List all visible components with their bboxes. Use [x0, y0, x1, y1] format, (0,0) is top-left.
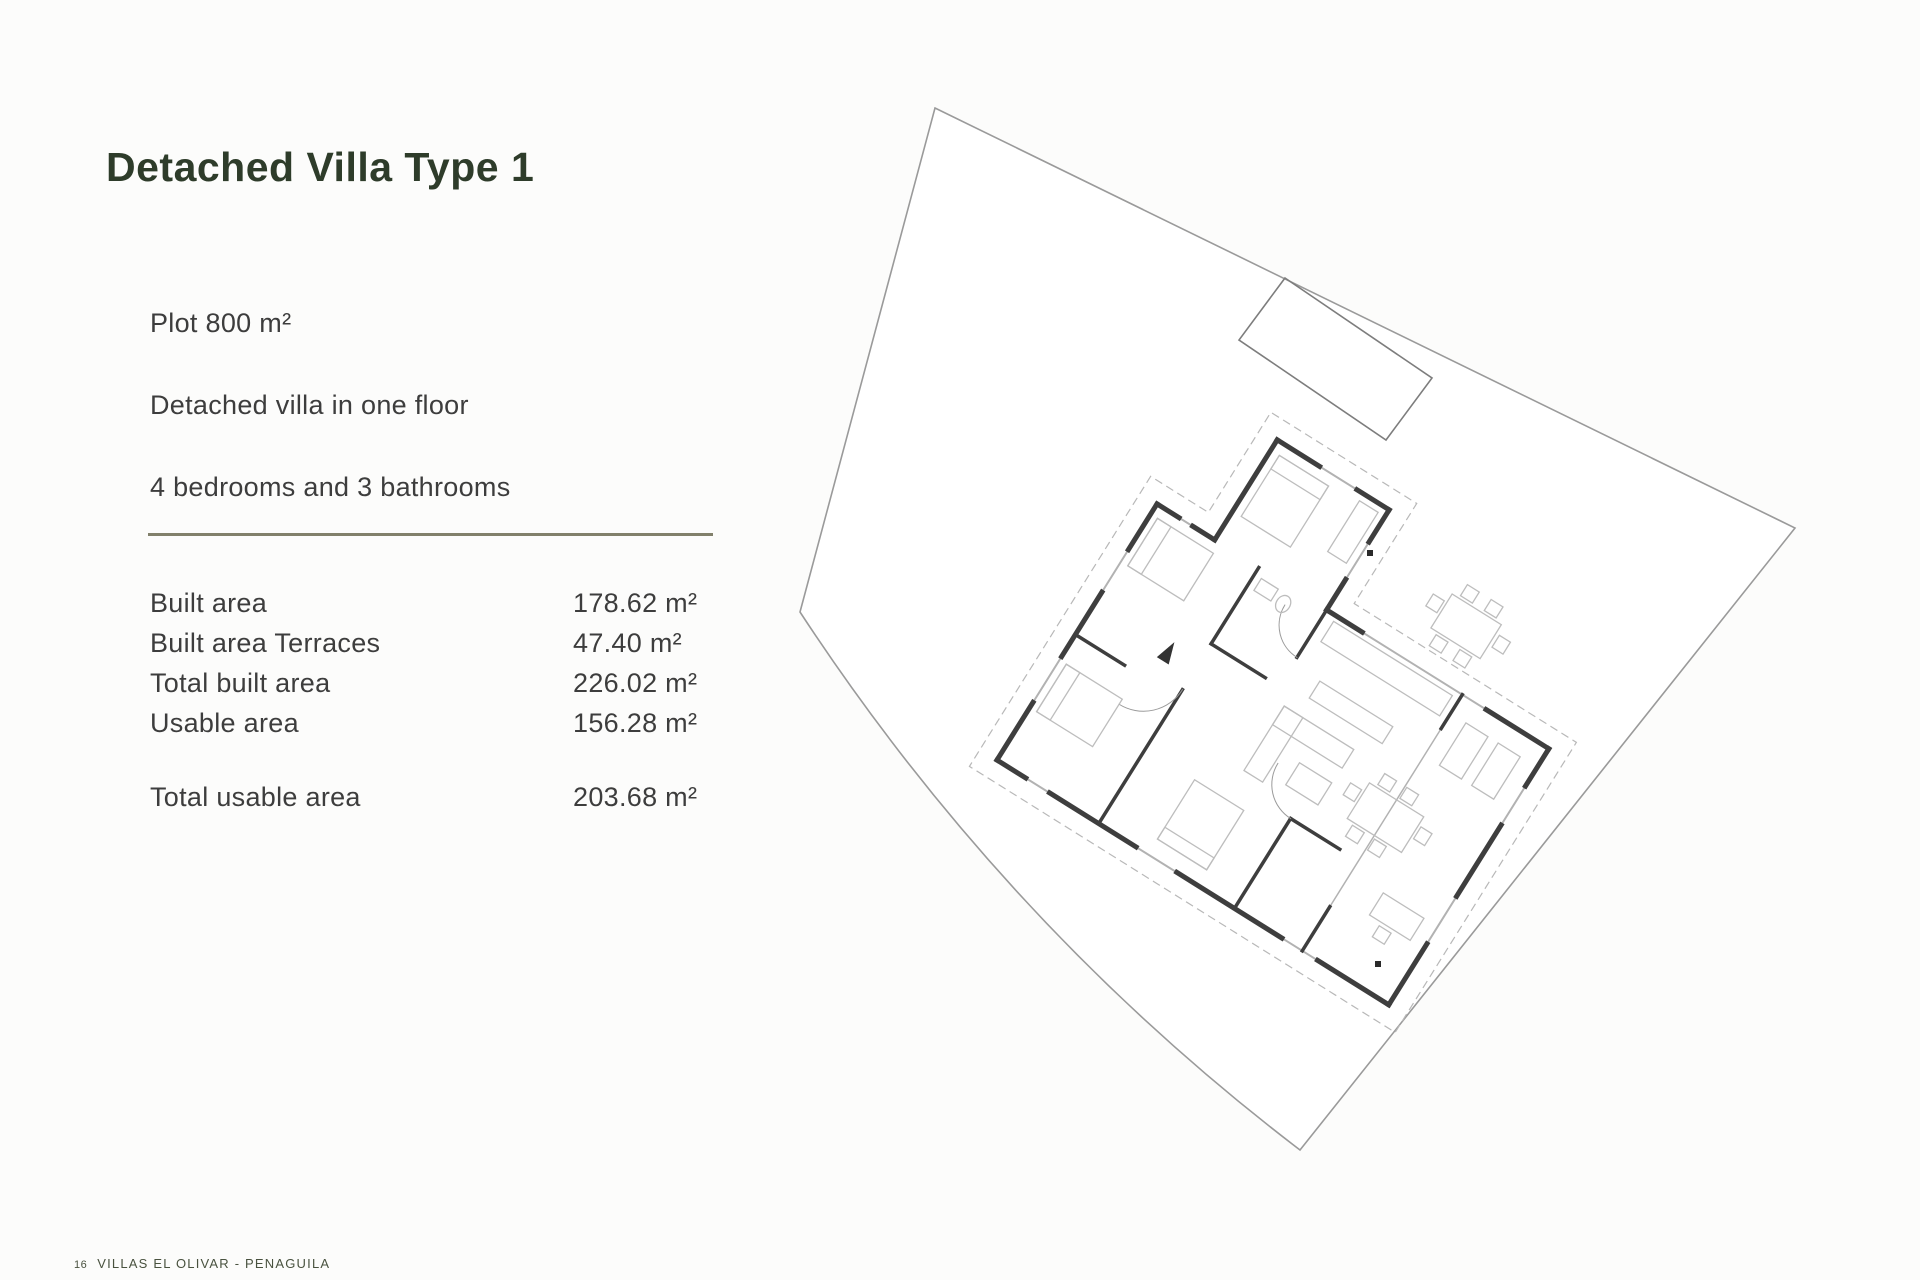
table-row: Usable area 156.28 m²: [150, 708, 710, 748]
area-label: Total usable area: [150, 782, 361, 813]
spec-floors: Detached villa in one floor: [150, 390, 469, 421]
table-row: Total built area 226.02 m²: [150, 668, 710, 708]
area-label: Total built area: [150, 668, 330, 699]
survey-marker-dot: [1367, 550, 1373, 556]
spec-rooms: 4 bedrooms and 3 bathrooms: [150, 472, 511, 503]
area-total-row: Total usable area 203.68 m²: [150, 782, 710, 822]
brochure-page: Detached Villa Type 1 Plot 800 m² Detach…: [0, 0, 1920, 1280]
page-footer: 16VILLAS EL OLIVAR - PENAGUILA: [74, 1256, 330, 1271]
section-divider: [148, 533, 713, 536]
plot-boundary: [800, 108, 1795, 1150]
table-row: Built area Terraces 47.40 m²: [150, 628, 710, 668]
footer-project-name: VILLAS EL OLIVAR - PENAGUILA: [97, 1256, 330, 1271]
area-label: Built area Terraces: [150, 628, 380, 659]
area-label: Usable area: [150, 708, 299, 739]
area-value: 178.62 m²: [573, 588, 697, 619]
table-row: Built area 178.62 m²: [150, 588, 710, 628]
survey-marker-dot: [1375, 961, 1381, 967]
spec-plot-size: Plot 800 m²: [150, 308, 291, 339]
area-label: Built area: [150, 588, 267, 619]
area-value: 156.28 m²: [573, 708, 697, 739]
area-value: 226.02 m²: [573, 668, 697, 699]
page-title: Detached Villa Type 1: [106, 144, 534, 191]
area-value: 47.40 m²: [573, 628, 682, 659]
area-value: 203.68 m²: [573, 782, 697, 813]
area-table: Built area 178.62 m² Built area Terraces…: [150, 588, 710, 748]
page-number: 16: [74, 1259, 87, 1271]
